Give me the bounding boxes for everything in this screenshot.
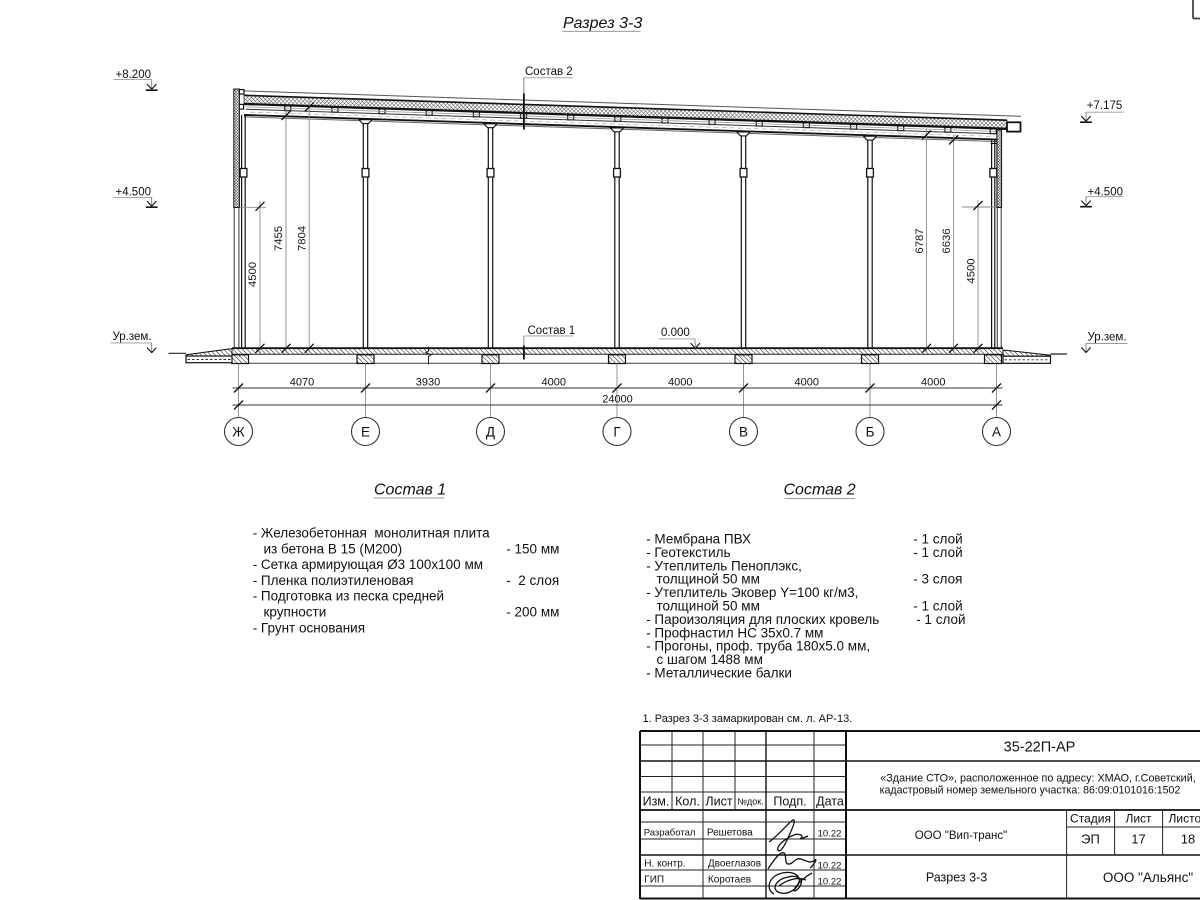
svg-text:№док.: №док. <box>737 797 763 807</box>
svg-text:Ур.зем.: Ур.зем. <box>1088 332 1127 344</box>
svg-text:Дата: Дата <box>816 795 844 809</box>
svg-text:4500: 4500 <box>965 258 977 283</box>
svg-text:7455: 7455 <box>273 226 285 251</box>
svg-text:из бетона В 15 (М200): из бетона В 15 (М200) <box>264 541 403 556</box>
svg-text:ООО "Альянс": ООО "Альянс" <box>1103 870 1193 885</box>
svg-text:10.22: 10.22 <box>818 861 842 872</box>
svg-text:4000: 4000 <box>921 376 945 388</box>
svg-text:18: 18 <box>1181 832 1195 847</box>
svg-text:3930: 3930 <box>416 376 440 388</box>
svg-text:Разрез 3-3: Разрез 3-3 <box>926 871 987 885</box>
svg-text:крупности: крупности <box>264 605 327 620</box>
svg-text:Н. контр.: Н. контр. <box>644 859 685 870</box>
svg-text:+4.500: +4.500 <box>116 187 152 199</box>
svg-text:Решетова: Решетова <box>707 828 753 839</box>
svg-text:Разрез 3-3: Разрез 3-3 <box>563 15 642 32</box>
svg-text:- Сетка армирующая Ø3 100х100: - Сетка армирующая Ø3 100х100 мм <box>253 557 483 572</box>
svg-text:Состав 1: Состав 1 <box>528 325 576 337</box>
svg-text:4070: 4070 <box>290 376 314 388</box>
svg-text:4000: 4000 <box>668 376 692 388</box>
svg-text:Подп.: Подп. <box>773 795 806 809</box>
svg-text:0.000: 0.000 <box>661 327 690 339</box>
svg-text:ЭП: ЭП <box>1081 832 1100 847</box>
svg-text:Лист: Лист <box>705 795 732 809</box>
svg-text:«Здание СТО», расположенное по: «Здание СТО», расположенное по адресу: Х… <box>880 773 1195 785</box>
svg-text:7804: 7804 <box>296 226 308 251</box>
svg-text:В: В <box>739 424 748 439</box>
svg-text:17: 17 <box>1131 832 1145 847</box>
svg-text:ГИП: ГИП <box>644 875 664 886</box>
svg-text:Разработал: Разработал <box>644 828 696 839</box>
svg-text:Кол.: Кол. <box>675 795 700 809</box>
svg-text:4000: 4000 <box>795 376 819 388</box>
svg-text:- Металлические балки: - Металлические балки <box>646 666 792 681</box>
svg-text:Коротаев: Коротаев <box>708 875 751 886</box>
svg-text:- 2 слоя: - 2 слоя <box>506 573 559 588</box>
svg-text:6636: 6636 <box>941 228 953 253</box>
svg-text:- Грунт основания: - Грунт основания <box>253 620 365 635</box>
svg-text:- Пленка полиэтиленовая: - Пленка полиэтиленовая <box>253 573 414 588</box>
svg-text:Ур.зем.: Ур.зем. <box>113 331 152 343</box>
svg-text:Листов: Листов <box>1169 812 1200 826</box>
svg-text:- Подготовка из песка средней: - Подготовка из песка средней <box>253 589 444 604</box>
svg-text:Б: Б <box>866 424 875 439</box>
svg-text:4000: 4000 <box>542 376 566 388</box>
svg-text:Состав 2: Состав 2 <box>784 482 856 499</box>
svg-text:4500: 4500 <box>247 262 259 287</box>
svg-text:Д: Д <box>486 424 495 439</box>
svg-text:Стадия: Стадия <box>1070 812 1111 826</box>
svg-text:- 3 слоя: - 3 слоя <box>913 572 962 587</box>
svg-text:Ж: Ж <box>232 424 245 439</box>
svg-text:35-22П-АР: 35-22П-АР <box>1004 740 1076 756</box>
svg-text:Двоеглазов: Двоеглазов <box>708 859 761 870</box>
svg-text:ООО "Вип-транс": ООО "Вип-транс" <box>915 830 1008 842</box>
svg-text:А: А <box>992 424 1001 439</box>
svg-text:1. Разрез 3-3 замаркирован см.: 1. Разрез 3-3 замаркирован см. л. АР-13. <box>643 713 853 725</box>
svg-text:- 1 слой: - 1 слой <box>913 545 962 560</box>
svg-text:кадастровый номер земельного у: кадастровый номер земельного участка: 86… <box>880 785 1181 797</box>
svg-text:10.22: 10.22 <box>818 877 842 888</box>
svg-text:24000: 24000 <box>602 393 633 405</box>
svg-text:Г: Г <box>613 424 621 439</box>
svg-text:Состав 2: Состав 2 <box>525 66 573 78</box>
svg-text:Е: Е <box>361 424 370 439</box>
svg-text:- 1 слой: - 1 слой <box>916 612 965 627</box>
svg-text:6787: 6787 <box>914 228 926 253</box>
svg-text:- 150 мм: - 150 мм <box>506 541 559 556</box>
svg-text:- 200 мм: - 200 мм <box>506 605 559 620</box>
svg-text:Изм.: Изм. <box>643 795 670 809</box>
svg-text:+7.175: +7.175 <box>1087 100 1123 112</box>
svg-text:Состав 1: Состав 1 <box>374 482 446 499</box>
svg-text:- Железобетонная монолитная п: - Железобетонная монолитная плита <box>253 526 490 541</box>
svg-text:10.22: 10.22 <box>818 829 842 840</box>
svg-text:Лист: Лист <box>1125 812 1152 826</box>
